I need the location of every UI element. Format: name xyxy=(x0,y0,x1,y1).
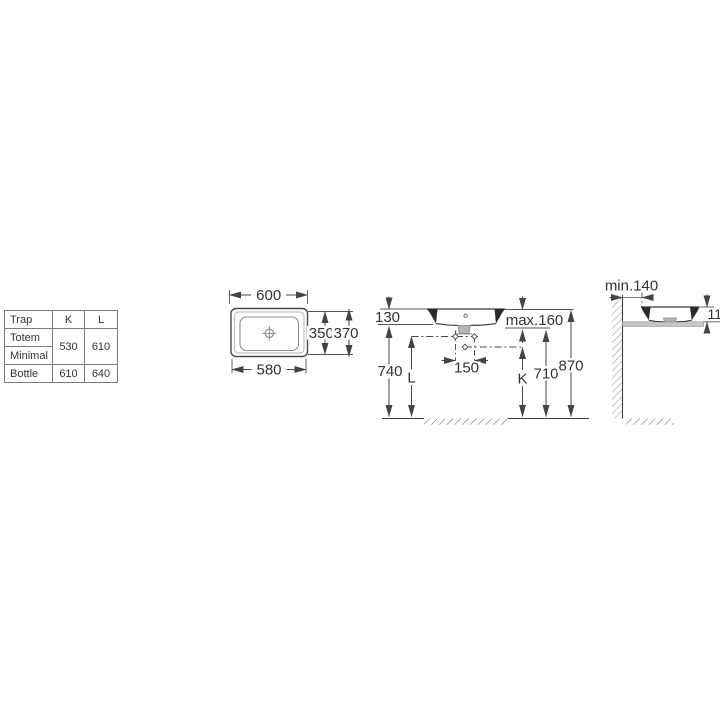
dim-label-min140: min.140 xyxy=(605,278,658,295)
dim-label-K: K xyxy=(517,371,527,388)
basin-wall-right xyxy=(690,307,700,320)
dim-label-370: 370 xyxy=(333,325,358,342)
ground-hatch xyxy=(626,419,674,425)
dim-label-600: 600 xyxy=(256,287,281,304)
dim-label-710: 710 xyxy=(533,366,558,383)
top-view: 600 350 370 580 xyxy=(230,287,361,379)
countertop xyxy=(623,322,704,327)
dim-label-740: 740 xyxy=(377,363,402,380)
connection-point-icon xyxy=(462,344,468,350)
basin-front-profile xyxy=(427,309,505,334)
basin-side-profile xyxy=(641,307,700,322)
dim-label-350: 350 xyxy=(309,325,334,342)
dim-label-150: 150 xyxy=(454,360,479,377)
faucet-hole-icon xyxy=(464,314,467,317)
basin-wall-left xyxy=(641,307,651,320)
front-view: 130 740 L 150 max.160 K 710 870 xyxy=(374,297,590,425)
basin-wall-left xyxy=(427,309,438,324)
wall-hatch xyxy=(612,295,623,419)
connection-point-icon xyxy=(472,334,478,340)
dim-label-580: 580 xyxy=(256,362,281,379)
dim-label-110: 110 xyxy=(708,306,720,322)
ground-hatch xyxy=(424,419,508,425)
drawing-views: 600 350 370 580 xyxy=(0,0,720,720)
dim-label-max160: max.160 xyxy=(506,312,564,329)
drain-outlet xyxy=(458,325,470,333)
dim-label-L: L xyxy=(407,370,415,387)
basin-wall-right xyxy=(495,309,506,324)
connection-point-icon xyxy=(453,334,459,340)
dim-label-870: 870 xyxy=(558,358,583,375)
side-view: min.140 110 xyxy=(605,278,720,425)
drain-outlet xyxy=(664,318,677,322)
dim-label-130: 130 xyxy=(375,309,400,326)
basin-dimension-drawing: Trap K L Totem 530 610 Minimal Bottle 61… xyxy=(0,0,720,720)
